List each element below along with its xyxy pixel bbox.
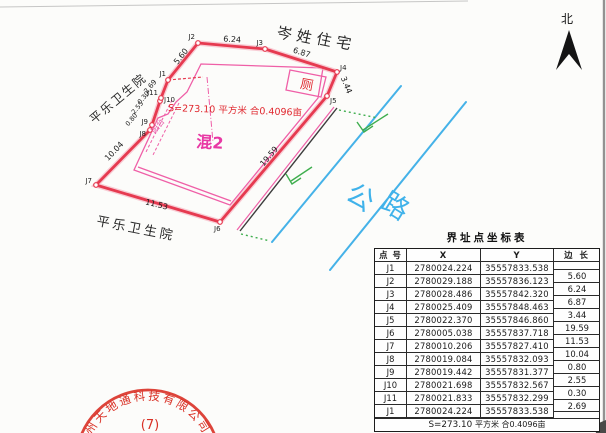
point-label-j1: J1	[158, 70, 166, 78]
north-label: 北	[561, 12, 573, 26]
cell-x: 2780029.188	[407, 275, 481, 288]
cell-y: 35557837.718	[481, 327, 553, 340]
building-inner-wall	[138, 167, 231, 201]
cell-edge-length: 5.60	[554, 269, 600, 282]
header-point-no: 点 号	[375, 249, 407, 262]
cell-y: 35557831.377	[481, 366, 553, 379]
cell-y: 35557848.463	[481, 301, 553, 314]
cell-p: J4	[375, 301, 407, 314]
company-stamp: 州天地通科技有限公司 (7)	[76, 389, 220, 433]
cell-p: J2	[375, 275, 407, 288]
cell-y: 35557833.538	[481, 262, 553, 275]
coord-table-header: 点 号 X Y	[375, 249, 553, 262]
table-row: J12780024.22435557833.538	[375, 262, 553, 275]
stamp-center-text: (7)	[141, 418, 159, 433]
cell-x: 2780019.084	[407, 353, 481, 366]
cell-x: 2780021.833	[407, 392, 481, 405]
cell-p: J1	[375, 262, 407, 275]
header-x: X	[407, 249, 481, 262]
footer-area: S=273.10	[428, 420, 472, 430]
table-row: J52780022.37035557846.860	[375, 314, 553, 327]
point-label-j4: J4	[339, 64, 347, 72]
neighbor-top-label: 岑姓住宅	[275, 23, 358, 54]
cell-p: J7	[375, 340, 407, 353]
cell-edge-length: 2.55	[554, 373, 600, 386]
cell-edge-length: 3.44	[554, 308, 600, 321]
edge-length-column: 边 长 5.606.246.873.4419.5911.5310.040.802…	[553, 249, 600, 418]
area-note: S=273.10 平方米 合0.4096亩	[168, 102, 302, 119]
slope-dotted-bottom	[241, 234, 270, 241]
coord-table: 界址点坐标表 点 号 X Y J12780024.22435557833.538…	[374, 230, 600, 432]
table-row: J62780005.03835557837.718	[375, 327, 553, 340]
header-edge-length: 边 长	[554, 249, 600, 262]
cell-p: J10	[375, 379, 407, 392]
table-row: J92780019.44235557831.377	[375, 366, 553, 379]
cell-x: 2780024.224	[407, 262, 481, 275]
coord-table-title: 界址点坐标表	[374, 230, 600, 245]
edge-length-cells: 5.606.246.873.4419.5911.5310.040.802.550…	[554, 262, 600, 418]
cell-x: 2780010.206	[407, 340, 481, 353]
cell-x: 2780005.038	[407, 327, 481, 340]
cell-y: 35557832.299	[481, 392, 553, 405]
cell-p: J11	[375, 392, 407, 405]
cell-x: 2780019.442	[407, 366, 481, 379]
cell-p: J8	[375, 353, 407, 366]
edge-label-j2-j3: 6.24	[223, 34, 241, 44]
point-label-j7: J7	[84, 177, 92, 185]
cell-edge-length: 11.53	[554, 334, 600, 347]
table-row: J82780019.08435557832.093	[375, 353, 553, 366]
toilet-label: 厕	[299, 77, 314, 94]
cell-x: 2780028.486	[407, 288, 481, 301]
coord-table-rows: J12780024.22435557833.538J22780029.18835…	[375, 262, 553, 418]
cell-y: 35557836.123	[481, 275, 553, 288]
footer-area-unit: 平方米 合0.4096亩	[475, 420, 546, 429]
point-label-j8: J8	[138, 130, 146, 138]
point-label-j5: J5	[329, 97, 337, 105]
table-row: J42780025.40935557848.463	[375, 301, 553, 314]
cell-edge-length: 6.87	[554, 295, 600, 308]
edge-label-j6-j7: 11.53	[144, 197, 168, 211]
cell-y: 35557832.093	[481, 353, 553, 366]
slope-symbol-bottom	[286, 167, 312, 184]
cell-p: J6	[375, 327, 407, 340]
table-row: J32780028.48635557842.320	[375, 288, 553, 301]
cell-x: 2780025.409	[407, 301, 481, 314]
cell-edge-length: 19.59	[554, 321, 600, 334]
edge-label-j4-j5: 3.44	[339, 75, 354, 95]
table-row: J112780021.83335557832.299	[375, 392, 553, 405]
point-label-j3: J3	[255, 39, 263, 47]
cell-x: 2780022.370	[407, 314, 481, 327]
cell-edge-length: 0.80	[554, 360, 600, 373]
cell-edge-length: 2.69	[554, 399, 600, 412]
slope-dotted-top	[339, 110, 378, 118]
cell-p: J5	[375, 314, 407, 327]
coord-table-footer: S=273.10 平方米 合0.4096亩	[375, 418, 599, 431]
road-label: 公路	[338, 175, 425, 234]
cell-x: 2780021.698	[407, 379, 481, 392]
north-arrow: 北	[556, 12, 582, 70]
cell-p: J3	[375, 288, 407, 301]
cell-p: J9	[375, 366, 407, 379]
cell-x: 2780024.224	[407, 405, 481, 418]
cell-y: 35557833.538	[481, 405, 553, 418]
point-label-j9: J9	[140, 118, 148, 126]
table-row: J12780024.22435557833.538	[375, 405, 553, 418]
point-label-j6: J6	[213, 225, 221, 233]
cell-edge-length: 10.04	[554, 347, 600, 360]
slope-symbol-top	[357, 114, 388, 132]
cell-edge-length: 0.30	[554, 386, 600, 399]
north-arrow-icon	[556, 30, 582, 70]
cell-y: 35557827.410	[481, 340, 553, 353]
neighbor-bottom-label: 平乐卫生院	[95, 214, 176, 244]
coord-table-frame: 点 号 X Y J12780024.22435557833.538J227800…	[374, 248, 600, 432]
building-type-label: 混2	[196, 132, 224, 153]
fence-line	[237, 107, 337, 231]
cell-y: 35557846.860	[481, 314, 553, 327]
cell-y: 35557842.320	[481, 288, 553, 301]
header-y: Y	[481, 249, 553, 262]
table-row: J72780010.20635557827.410	[375, 340, 553, 353]
cell-edge-length: 6.24	[554, 282, 600, 295]
table-row: J22780029.18835557836.123	[375, 275, 553, 288]
cell-p: J1	[375, 405, 407, 418]
parcel-map-sheet: 公路	[0, 0, 606, 433]
cell-y: 35557832.567	[481, 379, 553, 392]
table-row: J102780021.69835557832.567	[375, 379, 553, 392]
point-label-j2: J2	[187, 33, 195, 41]
